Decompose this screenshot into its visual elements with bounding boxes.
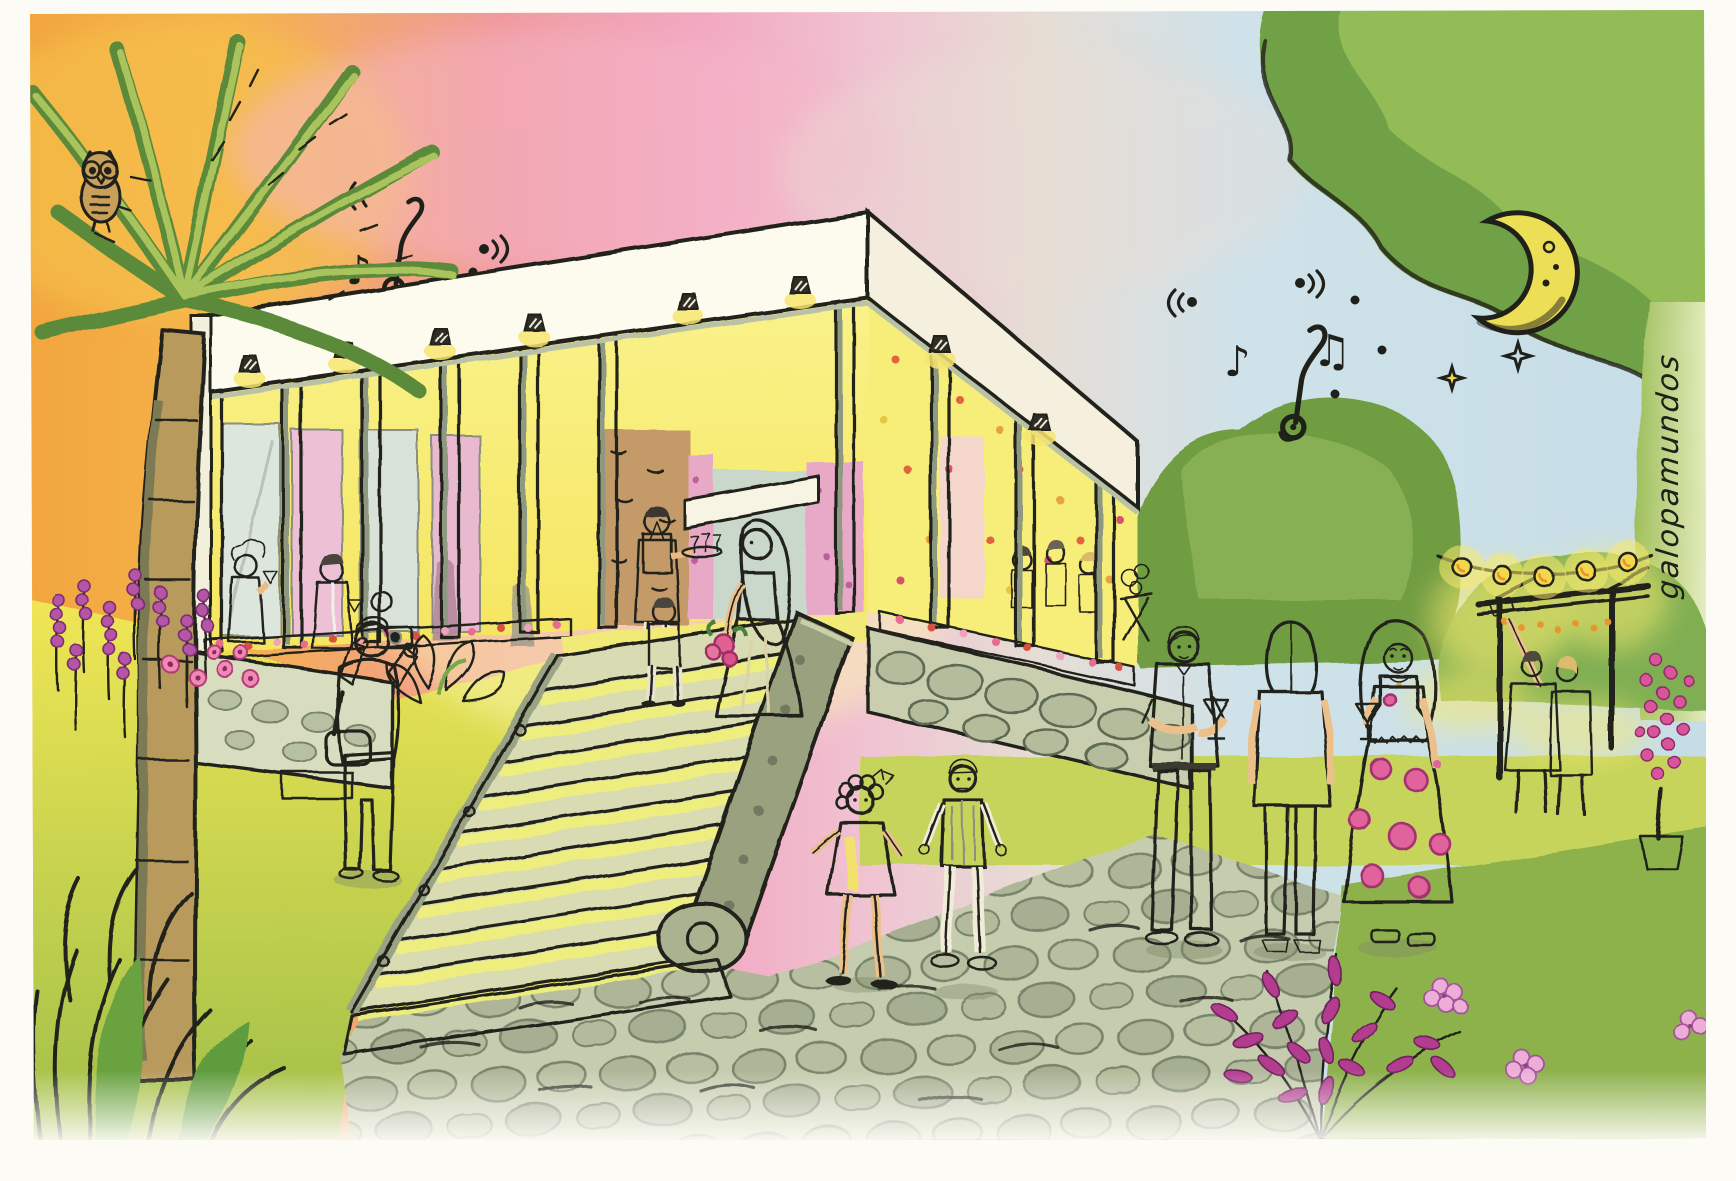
stone-wall-interior [600,430,690,626]
watercolor-painting: ♪ ♫ ♫ ♪ ♫ [0,0,1736,1181]
bottom-wash-fade [28,1070,1710,1142]
note-icon: ♪ [1224,337,1251,386]
note-icon: ♫ [1312,326,1351,377]
painting-canvas: ♪ ♫ ♫ ♪ ♫ [0,0,1736,1181]
artist-signature: galopamundos [1651,351,1686,600]
